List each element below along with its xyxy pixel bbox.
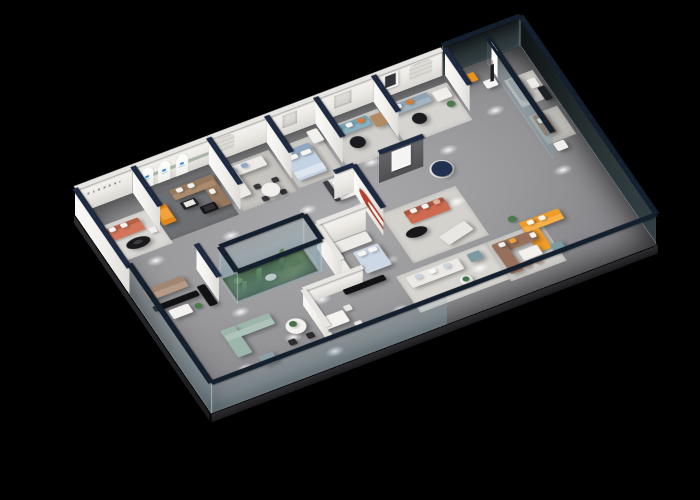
- wall-niche: [334, 89, 351, 108]
- showroom-render-stage: [0, 0, 700, 500]
- display-figure-person: [488, 51, 497, 84]
- isometric-world: [75, 46, 657, 413]
- wall-niche: [282, 110, 297, 128]
- art-frame: [383, 70, 398, 91]
- person-figure-body: [490, 63, 494, 83]
- feature-wall-frame-inner: [393, 147, 409, 169]
- art-frame-inner: [385, 73, 396, 88]
